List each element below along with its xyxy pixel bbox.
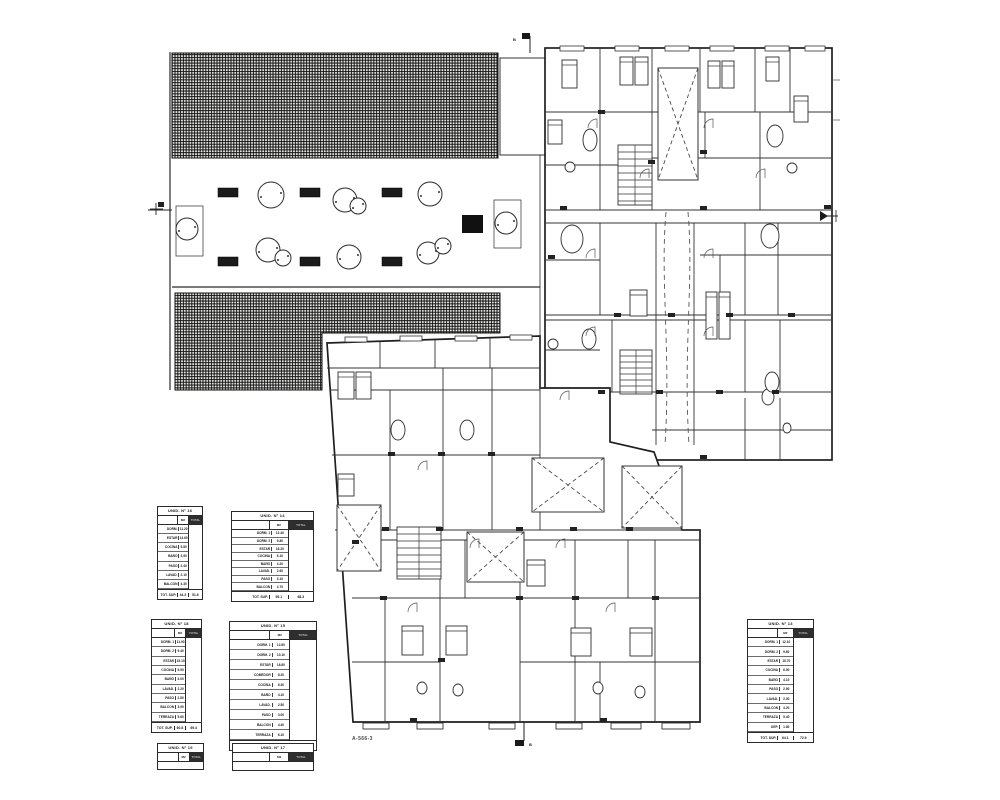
table-row: PASO2.90	[748, 685, 793, 694]
room-area: 4.70	[271, 585, 288, 589]
table-header-m2: M2	[177, 516, 188, 524]
table-header-row: M2TOTAL	[158, 516, 202, 525]
section-marker-bottom	[515, 722, 524, 746]
table-header-m2: M2	[178, 753, 189, 761]
room-label: ESTAR	[152, 659, 175, 663]
table-row: LAVAD.2.20	[152, 685, 185, 694]
room-label: LAVAD.	[748, 697, 779, 701]
room-area: 16.20	[271, 547, 288, 551]
schedule-table-unit-14: UNID. N° 14M2TOTALDORM. 112.40DORM. 29.8…	[231, 511, 314, 602]
table-row: LAVAD.2.50	[230, 700, 289, 710]
table-header-total: TOTAL	[288, 753, 313, 761]
room-area: 2.30	[779, 697, 792, 701]
sheet-number-label: A-566-3	[352, 736, 373, 742]
table-row: DORM. 111.90	[152, 638, 185, 647]
table-row: COCINA5.90	[152, 666, 185, 675]
table-title: UNID. N° 13	[748, 620, 813, 629]
table-header-blank	[158, 753, 178, 761]
total-label: TOT. SUP.	[748, 736, 777, 740]
total-value: 68.3	[288, 595, 313, 599]
room-area: 4.10	[272, 693, 290, 697]
table-row: PASO3.00	[230, 710, 289, 720]
table-total-row: TOT. SUP.44.351.6	[158, 589, 202, 599]
room-label: TERRAZA	[152, 715, 175, 719]
table-row: DORM. 29.60	[748, 647, 793, 656]
total-m2: 59.1	[269, 595, 288, 599]
table-row: BAÑO3.90	[158, 552, 188, 561]
room-area: 15.70	[779, 659, 792, 663]
table-header-total: TOTAL	[188, 516, 202, 524]
table-total-row: TOT. SUP.60.869.4	[152, 722, 201, 732]
table-body: DORM. 112.60DORM. 210.10ESTAR16.80COMEDO…	[230, 640, 316, 740]
section-marker-top	[522, 33, 530, 53]
table-header-m2: M2	[174, 629, 186, 637]
total-value: 69.4	[185, 726, 201, 730]
total-label: TOT. SUP.	[152, 726, 174, 730]
table-rows: DORM. 112.40DORM. 29.80ESTAR16.20COCINA6…	[232, 530, 288, 591]
section-marker-left	[148, 202, 172, 215]
room-area: 5.60	[175, 715, 185, 719]
room-label: ESTAR	[232, 547, 271, 551]
total-m2: 64.1	[777, 736, 792, 740]
room-label: BAÑO	[152, 677, 175, 681]
table-header-row: M2TOTAL	[232, 521, 313, 530]
room-area: 4.20	[779, 706, 792, 710]
room-label: ESTAR	[158, 536, 178, 540]
room-label: DORM. 2	[152, 649, 175, 653]
table-header-m2: M2	[777, 629, 792, 637]
room-area: 4.10	[779, 678, 792, 682]
schedule-table-unit-13: UNID. N° 13M2TOTALDORM. 112.10DORM. 29.6…	[747, 619, 814, 743]
room-area: 2.10	[178, 573, 187, 577]
room-area: 12.60	[272, 643, 290, 647]
table-row: BAÑO4.20	[232, 561, 288, 569]
schedule-table-unit-17-clipped: UNID. N° 17M2TOTAL	[232, 743, 314, 771]
table-header-total: TOTAL	[793, 629, 814, 637]
table-row: ESTAR16.20	[232, 545, 288, 553]
table-row: COCINA6.10	[232, 553, 288, 561]
roof-hatch-upper	[172, 53, 498, 158]
total-value: 51.6	[188, 593, 202, 597]
table-body: DORM. 112.10DORM. 29.60ESTAR15.70COCINA6…	[748, 638, 813, 732]
table-row: DORM. 112.60	[230, 640, 289, 650]
room-area: 14.60	[178, 536, 187, 540]
table-header-row: M2TOTAL	[233, 753, 313, 762]
room-label: COCINA	[152, 668, 175, 672]
table-header-m2: M2	[269, 753, 288, 761]
courtyard-furniture	[176, 182, 521, 269]
table-total-span-cell	[288, 530, 313, 591]
table-title: UNID. N° 19	[158, 744, 203, 753]
table-row: BALCON3.90	[152, 703, 185, 712]
room-area: 6.10	[272, 733, 290, 737]
table-total-span-cell	[793, 638, 814, 732]
room-label: BAÑO	[158, 554, 178, 558]
table-title: UNID. N° 15	[230, 622, 316, 631]
room-area: 4.00	[175, 677, 185, 681]
room-area: 2.40	[178, 564, 187, 568]
schedule-table-unit-16: UNID. N° 16M2TOTALDORM.11.20ESTAR14.60CO…	[157, 506, 203, 600]
table-row: COMEDOR8.20	[230, 670, 289, 680]
table-body: DORM. 112.40DORM. 29.80ESTAR16.20COCINA6…	[232, 530, 313, 591]
room-area: 12.40	[271, 531, 288, 535]
table-total-span-cell	[188, 525, 202, 589]
room-label: DORM. 1	[748, 640, 779, 644]
room-label: LAVAD.	[232, 569, 271, 573]
room-label: COCINA	[232, 554, 271, 558]
table-row: DORM.11.20	[158, 525, 188, 534]
table-row: ESTAR16.80	[230, 660, 289, 670]
room-area: 11.90	[175, 640, 185, 644]
table-row: ESTAR15.70	[748, 657, 793, 666]
room-label: COCINA	[230, 683, 272, 687]
table-row: LAVAD.2.60	[232, 568, 288, 576]
table-rows: DORM. 112.10DORM. 29.60ESTAR15.70COCINA6…	[748, 638, 793, 732]
room-area: 5.80	[178, 545, 187, 549]
schedule-table-unit-15: UNID. N° 15M2TOTALDORM. 112.60DORM. 210.…	[229, 621, 317, 751]
table-row: BAÑO4.10	[748, 676, 793, 685]
table-row: PASO2.80	[152, 694, 185, 703]
table-row: TERRAZA5.40	[748, 713, 793, 722]
room-label: DORM. 2	[232, 539, 271, 543]
room-area: 3.10	[271, 577, 288, 581]
table-row: TERRAZA6.10	[230, 730, 289, 740]
table-title: UNID. N° 17	[233, 744, 313, 753]
table-header-total: TOTAL	[189, 753, 204, 761]
table-row: DORM. 29.40	[152, 647, 185, 656]
room-label: PASO	[158, 564, 178, 568]
room-area: 2.90	[779, 687, 792, 691]
room-area: 6.10	[271, 554, 288, 558]
table-row: BAÑO4.00	[152, 675, 185, 684]
room-label: BALCON	[232, 585, 271, 589]
room-area: 4.30	[178, 582, 187, 586]
table-row: ESTAR14.60	[158, 534, 188, 543]
room-label: PASO	[152, 696, 175, 700]
table-row: DEP.1.80	[748, 723, 793, 732]
total-label: TOT. SUP.	[232, 595, 269, 599]
total-value: 72.9	[793, 736, 814, 740]
table-total-span-cell	[185, 638, 201, 722]
table-row: BAÑO4.10	[230, 690, 289, 700]
table-header-blank	[748, 629, 777, 637]
room-label: DORM. 1	[232, 531, 271, 535]
table-total-row: TOT. SUP.59.168.3	[232, 591, 313, 601]
room-area: 4.40	[272, 723, 290, 727]
section-letter-top: B	[513, 37, 516, 42]
table-row: PASO3.10	[232, 576, 288, 584]
table-header-row: M2TOTAL	[748, 629, 813, 638]
room-label: BALCON	[748, 706, 779, 710]
room-label: DORM. 2	[748, 650, 779, 654]
room-area: 15.10	[175, 659, 185, 663]
table-header-m2: M2	[269, 521, 288, 529]
room-area: 3.00	[272, 713, 290, 717]
room-label: DORM. 2	[230, 653, 272, 657]
table-header-blank	[152, 629, 174, 637]
table-header-total: TOTAL	[185, 629, 201, 637]
roof-terrace-box	[500, 58, 547, 155]
schedule-table-unit-19-clipped: UNID. N° 19M2TOTAL	[157, 743, 204, 770]
room-label: COCINA	[158, 545, 178, 549]
room-area: 12.10	[779, 640, 792, 644]
table-row: TERRAZA5.60	[152, 713, 185, 722]
table-header-row: M2TOTAL	[158, 753, 203, 762]
table-row: LAVAD.2.10	[158, 571, 188, 580]
table-header-blank	[233, 753, 269, 761]
room-area: 5.90	[175, 668, 185, 672]
table-row: COCINA6.00	[748, 666, 793, 675]
room-label: PASO	[232, 577, 271, 581]
room-label: PASO	[748, 687, 779, 691]
table-header-blank	[230, 631, 269, 639]
table-title: UNID. N° 14	[232, 512, 313, 521]
room-area: 6.30	[272, 683, 290, 687]
table-row: COCINA5.80	[158, 543, 188, 552]
table-title: UNID. N° 16	[158, 507, 202, 516]
table-row: LAVAD.2.30	[748, 694, 793, 703]
table-rows: DORM. 112.60DORM. 210.10ESTAR16.80COMEDO…	[230, 640, 289, 740]
room-area: 4.20	[271, 562, 288, 566]
table-row: DORM. 29.80	[232, 538, 288, 546]
table-header-row: M2TOTAL	[152, 629, 201, 638]
room-label: LAVAD.	[230, 703, 272, 707]
table-title: UNID. N° 18	[152, 620, 201, 629]
table-header-row: M2TOTAL	[230, 631, 316, 640]
table-row: BALCON4.70	[232, 583, 288, 591]
room-label: BALCON	[152, 705, 175, 709]
room-area: 16.80	[272, 663, 290, 667]
table-row: BALCON4.40	[230, 720, 289, 730]
room-label: DORM. 1	[230, 643, 272, 647]
room-area: 9.80	[271, 539, 288, 543]
room-label: ESTAR	[230, 663, 272, 667]
room-label: LAVAD.	[158, 573, 178, 577]
room-label: BAÑO	[230, 693, 272, 697]
room-label: BAÑO	[748, 678, 779, 682]
room-label: COMEDOR	[230, 673, 272, 677]
room-area: 5.40	[779, 715, 792, 719]
table-header-total: TOTAL	[289, 631, 316, 639]
room-area: 9.40	[175, 649, 185, 653]
room-label: ESTAR	[748, 659, 779, 663]
room-area: 8.20	[272, 673, 290, 677]
room-label: DEP.	[748, 725, 779, 729]
table-body: DORM.11.20ESTAR14.60COCINA5.80BAÑO3.90PA…	[158, 525, 202, 589]
table-row: COCINA6.30	[230, 680, 289, 690]
table-row: DORM. 112.10	[748, 638, 793, 647]
room-label: BALCON	[230, 723, 272, 727]
room-area: 10.10	[272, 653, 290, 657]
room-area: 3.90	[178, 554, 187, 558]
room-label: LAVAD.	[152, 687, 175, 691]
room-label: DORM.	[158, 527, 178, 531]
table-rows: DORM. 111.90DORM. 29.40ESTAR15.10COCINA5…	[152, 638, 185, 722]
room-area: 2.60	[271, 569, 288, 573]
room-area: 2.80	[175, 696, 185, 700]
table-header-blank	[232, 521, 269, 529]
room-label: COCINA	[748, 668, 779, 672]
room-label: DORM. 1	[152, 640, 175, 644]
room-label: PASO	[230, 713, 272, 717]
table-header-blank	[158, 516, 177, 524]
room-label: BALCON	[158, 582, 178, 586]
room-label: TERRAZA	[230, 733, 272, 737]
room-area: 2.20	[175, 687, 185, 691]
table-body: DORM. 111.90DORM. 29.40ESTAR15.10COCINA5…	[152, 638, 201, 722]
total-m2: 60.8	[174, 726, 186, 730]
table-row: BALCON4.30	[158, 580, 188, 589]
floorplan-sheet: UNID. N° 16M2TOTALDORM.11.20ESTAR14.60CO…	[0, 0, 1000, 800]
room-area: 9.60	[779, 650, 792, 654]
schedule-table-unit-18: UNID. N° 18M2TOTALDORM. 111.90DORM. 29.4…	[151, 619, 202, 733]
table-row: ESTAR15.10	[152, 657, 185, 666]
table-rows: DORM.11.20ESTAR14.60COCINA5.80BAÑO3.90PA…	[158, 525, 188, 589]
table-header-total: TOTAL	[288, 521, 313, 529]
table-row: BALCON4.20	[748, 704, 793, 713]
room-area: 6.00	[779, 668, 792, 672]
table-row: DORM. 112.40	[232, 530, 288, 538]
table-row: PASO2.40	[158, 562, 188, 571]
table-total-row: TOT. SUP.64.172.9	[748, 732, 813, 742]
room-label: BAÑO	[232, 562, 271, 566]
room-area: 3.90	[175, 705, 185, 709]
section-letter-bottom: B	[529, 742, 532, 747]
table-row: DORM. 210.10	[230, 650, 289, 660]
table-total-span-cell	[289, 640, 316, 740]
total-m2: 44.3	[177, 593, 188, 597]
room-area: 11.20	[178, 527, 187, 531]
room-area: 1.80	[779, 725, 792, 729]
room-label: TERRAZA	[748, 715, 779, 719]
floor-plan-drawing	[0, 0, 1000, 800]
room-area: 2.50	[272, 703, 290, 707]
table-header-m2: M2	[269, 631, 289, 639]
total-label: TOT. SUP.	[158, 593, 177, 597]
